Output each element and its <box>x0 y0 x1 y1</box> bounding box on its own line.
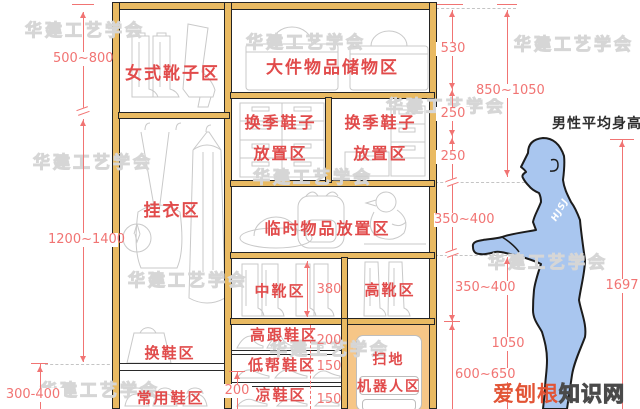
dim-arrow <box>304 262 310 268</box>
zone-mid-boots: 中靴区 <box>240 284 320 299</box>
site-badge-right: 知识网 <box>559 382 625 406</box>
dim-seasonal-lower: 250 <box>436 150 470 164</box>
dim-arrow <box>449 324 455 330</box>
zone-high-boots: 高靴区 <box>355 283 425 298</box>
ref-dash-top <box>436 8 516 9</box>
dim-arrow <box>449 138 455 144</box>
dim-arrow <box>504 11 510 17</box>
dim-tick <box>72 4 94 5</box>
person-height-label: 男性平均身高 <box>552 113 640 133</box>
dim-line-1697 <box>622 140 623 409</box>
zone-large-storage: 大件物品储物区 <box>240 60 425 77</box>
dim-left-bottom: 300-400 <box>2 388 64 402</box>
dim-chain-right <box>452 10 453 409</box>
ref-dash-bench <box>45 364 115 365</box>
watermark: 华建工艺学会 <box>253 163 373 188</box>
dim-mid-boot-height: 380 <box>314 283 344 297</box>
dim-arrow <box>504 170 510 176</box>
shelf-mid-4 <box>230 318 435 325</box>
dim-arrow <box>80 356 86 362</box>
site-badge-left: 爱刨根 <box>493 382 559 406</box>
dim-low-shoes-height: 150 <box>315 360 343 374</box>
dim-tick <box>437 4 463 5</box>
watermark: 华建工艺学会 <box>246 28 366 53</box>
dim-boot-section: 350~400 <box>455 281 513 295</box>
watermark: 华建工艺学会 <box>514 30 634 55</box>
cabinet-middle-post <box>224 2 232 409</box>
zone-seasonal-left-line1: 换季鞋子 <box>233 115 328 131</box>
dim-left-middle: 1200~1400 <box>48 233 118 247</box>
bench-shelf <box>119 363 225 371</box>
watermark: 华建工艺学会 <box>128 266 248 291</box>
robot-sketch <box>362 399 416 409</box>
cabinet-right-post <box>429 2 437 409</box>
zone-sandals: 凉鞋区 <box>246 388 316 403</box>
zone-seasonal-left-line2: 放置区 <box>233 146 328 162</box>
dim-line-380 <box>307 261 308 317</box>
dim-arrow <box>37 366 43 372</box>
cabinet-top-beam <box>112 2 437 10</box>
dim-arrow <box>449 130 455 136</box>
dim-arrow <box>449 11 455 17</box>
dim-tick <box>444 321 460 322</box>
dim-sandals-height: 150 <box>315 393 343 407</box>
zone-seasonal-right-line1: 换季鞋子 <box>333 115 428 131</box>
dim-arrow <box>234 373 240 379</box>
dim-temp-section: 350~400 <box>434 213 492 227</box>
zone-shoe-change: 换鞋区 <box>135 346 205 361</box>
shelf-mid-3 <box>230 252 435 259</box>
dim-arrow <box>619 141 625 147</box>
wardrobe-dimension-diagram: 华建工艺学会 华建工艺学会 华建工艺学会 华建工艺学会 华建工艺学会 华建工艺学… <box>0 0 640 409</box>
dim-upper-total: 850~1050 <box>476 84 540 98</box>
dim-heels-height: 200 <box>315 334 343 348</box>
dim-break <box>76 106 89 116</box>
zone-seasonal-right-line2: 放置区 <box>333 146 428 162</box>
zone-women-boots: 女式靴子区 <box>120 66 225 83</box>
zone-robot-line2: 机器人区 <box>352 380 426 394</box>
zone-hanging: 挂衣区 <box>122 203 222 220</box>
dim-arrow <box>304 311 310 317</box>
shelf-left-1 <box>118 112 230 119</box>
dim-counter-height: 1050 <box>489 337 527 351</box>
dim-dash-shoe-rows <box>310 325 311 409</box>
dim-arrow <box>449 90 455 96</box>
site-badge: 爱刨根知识网 <box>493 378 625 408</box>
dim-kick-height: 200 <box>222 384 252 398</box>
dim-arrow <box>504 258 510 264</box>
dim-left-top: 500~800 <box>53 52 111 66</box>
zone-daily-shoes: 常用鞋区 <box>128 391 213 406</box>
dim-tick <box>497 4 517 5</box>
dim-top-section: 530 <box>436 42 470 56</box>
dim-arrow <box>80 120 86 126</box>
dim-person-height: 1697 <box>600 279 640 293</box>
watermark: 华建工艺学会 <box>25 16 145 41</box>
zone-temp-items: 临时物品放置区 <box>250 221 405 237</box>
dim-seasonal-upper: 250 <box>436 107 470 121</box>
dim-arrow <box>449 83 455 89</box>
zone-low-shoes: 低帮鞋区 <box>238 358 326 373</box>
watermark: 华建工艺学会 <box>33 148 153 173</box>
dim-arrow <box>80 12 86 18</box>
zone-robot-line1: 扫地 <box>356 353 421 367</box>
